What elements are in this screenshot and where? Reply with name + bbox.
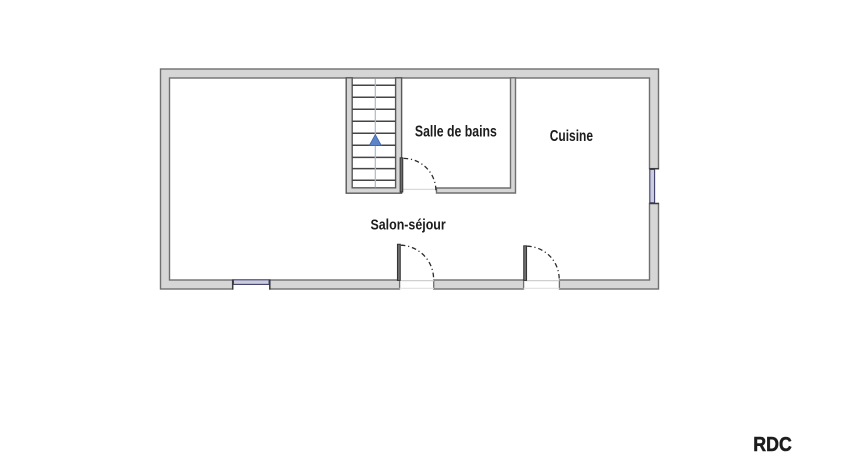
svg-text:Cuisine: Cuisine [550, 128, 593, 145]
svg-text:Salon-séjour: Salon-séjour [371, 217, 446, 233]
svg-text:RDC: RDC [753, 434, 792, 456]
svg-text:Salle de bains: Salle de bains [415, 124, 497, 141]
